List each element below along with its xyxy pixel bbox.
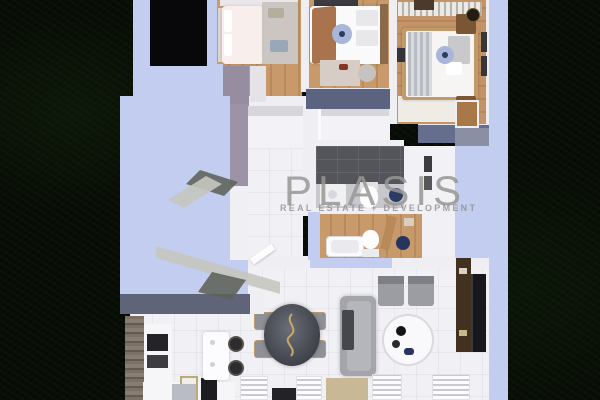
kitchen-oven bbox=[147, 334, 168, 351]
exterior-wall-right bbox=[489, 0, 508, 400]
radiator-1 bbox=[240, 376, 268, 400]
bedroom1-2-wall bbox=[301, 0, 309, 92]
b2-slippers bbox=[339, 64, 348, 70]
coffee-table-decor-2 bbox=[392, 340, 400, 348]
bar-stool bbox=[228, 336, 244, 352]
bath2-side-room bbox=[420, 212, 455, 258]
coffee-table-decor bbox=[396, 326, 406, 336]
tv-console-item-2 bbox=[459, 330, 467, 336]
b1-white-wardrobe bbox=[250, 66, 266, 102]
kitchen-appliance bbox=[147, 355, 168, 368]
watermark-subtitle: REAL ESTATE + DEVELOPMENT bbox=[280, 203, 477, 213]
b2-headboard bbox=[380, 4, 388, 64]
b3-beam bbox=[414, 0, 434, 10]
armchair-2-back bbox=[408, 276, 434, 284]
b1-pillow-2 bbox=[224, 34, 232, 56]
kitchen-cooktop bbox=[201, 378, 217, 400]
b2-wardrobe bbox=[306, 88, 390, 109]
tv-console-item bbox=[459, 268, 467, 274]
bar-stool-2 bbox=[228, 360, 244, 376]
b3-striped-blanket bbox=[408, 32, 432, 96]
kitchen-island bbox=[203, 332, 229, 380]
bath2-tub-basin bbox=[331, 240, 359, 253]
coffee-table bbox=[382, 314, 434, 366]
b1-bench-cushion bbox=[268, 8, 284, 18]
dining-centerpiece bbox=[278, 312, 306, 358]
b2-pillow-2 bbox=[356, 30, 378, 46]
radiator-4 bbox=[432, 374, 470, 400]
b2-pouf bbox=[358, 64, 376, 82]
b3-floor-lamp bbox=[397, 48, 405, 62]
doormat bbox=[326, 378, 368, 400]
tv-screen bbox=[471, 274, 486, 352]
kitchen-tall-cabinet bbox=[125, 316, 144, 400]
radiator-2 bbox=[296, 376, 322, 400]
kitchen-counter-left bbox=[144, 324, 172, 382]
island-knob bbox=[210, 340, 215, 345]
b2-pillow bbox=[356, 10, 378, 26]
b3-wall-frame-2 bbox=[481, 56, 487, 76]
sofa-throw-blanket bbox=[342, 310, 354, 350]
bath2-shelf bbox=[404, 218, 414, 226]
bath2-navy-stool bbox=[396, 236, 410, 250]
bath2-left-wall-exterior bbox=[308, 212, 320, 260]
bath2-toilet bbox=[362, 230, 379, 249]
radiator-3 bbox=[372, 374, 402, 400]
b1-pillow bbox=[224, 10, 232, 32]
b3-closet-door bbox=[455, 100, 479, 128]
b3-fan-hub bbox=[442, 52, 448, 58]
bath2-toilet-tank bbox=[362, 249, 379, 257]
right-wall-cap bbox=[455, 128, 489, 146]
b3-pendant-lamp-icon bbox=[466, 8, 480, 22]
plasis-logo-mark-icon bbox=[148, 166, 298, 306]
floorplan-render: { "watermark": { "title": "PLASIS", "sub… bbox=[0, 0, 600, 400]
b2-fan-hub bbox=[339, 31, 345, 37]
stairwell-void bbox=[150, 0, 207, 66]
b3-wall-frame bbox=[481, 32, 487, 52]
coffee-table-navy-decor bbox=[404, 348, 414, 355]
b1-laundry-item bbox=[270, 40, 288, 52]
b3-pillow bbox=[446, 62, 462, 75]
kitchen-floor-mat bbox=[172, 384, 196, 400]
armchair-1-back bbox=[378, 276, 404, 284]
island-knob-2 bbox=[210, 362, 215, 367]
